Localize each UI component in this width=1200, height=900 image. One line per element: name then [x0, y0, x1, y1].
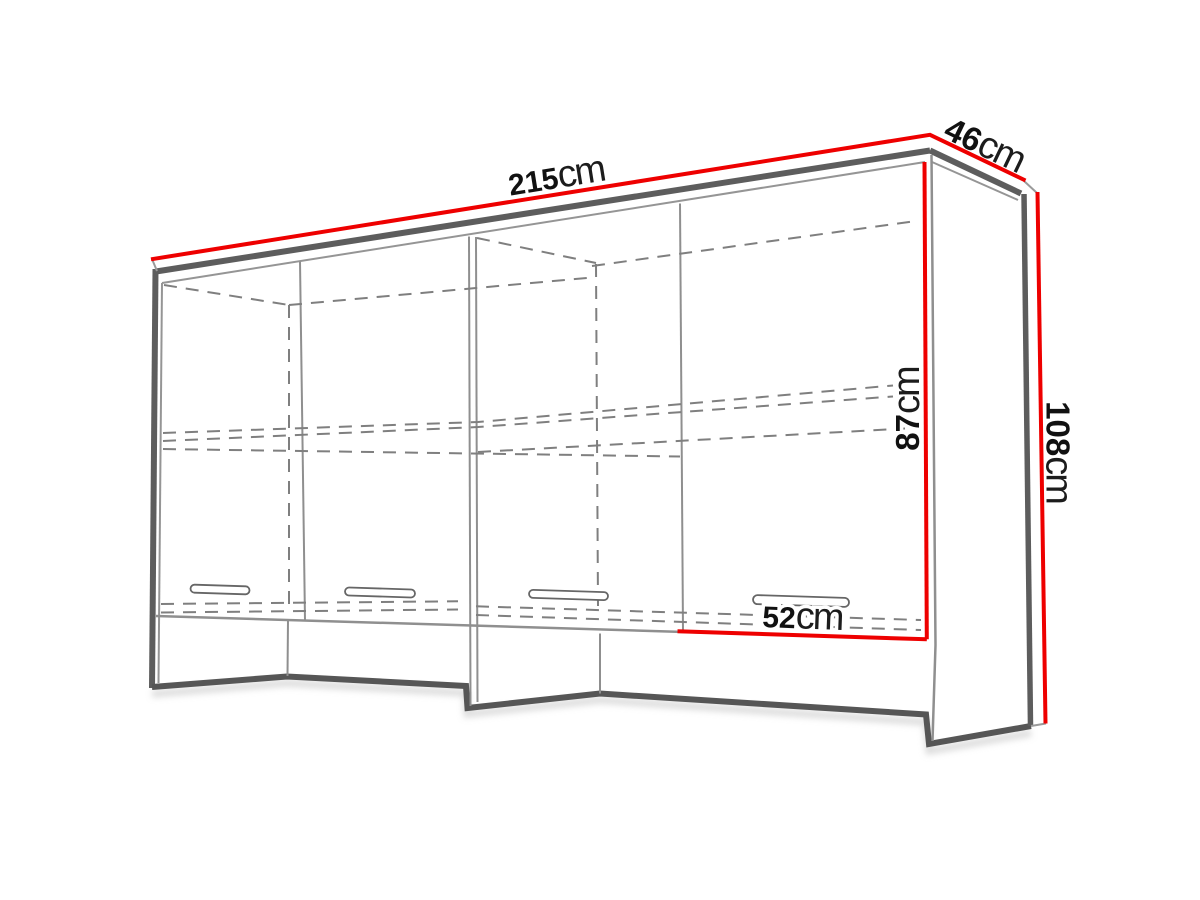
svg-text:108cm: 108cm: [1038, 401, 1080, 503]
svg-text:52cm: 52cm: [762, 594, 844, 639]
svg-text:87cm: 87cm: [886, 367, 928, 451]
